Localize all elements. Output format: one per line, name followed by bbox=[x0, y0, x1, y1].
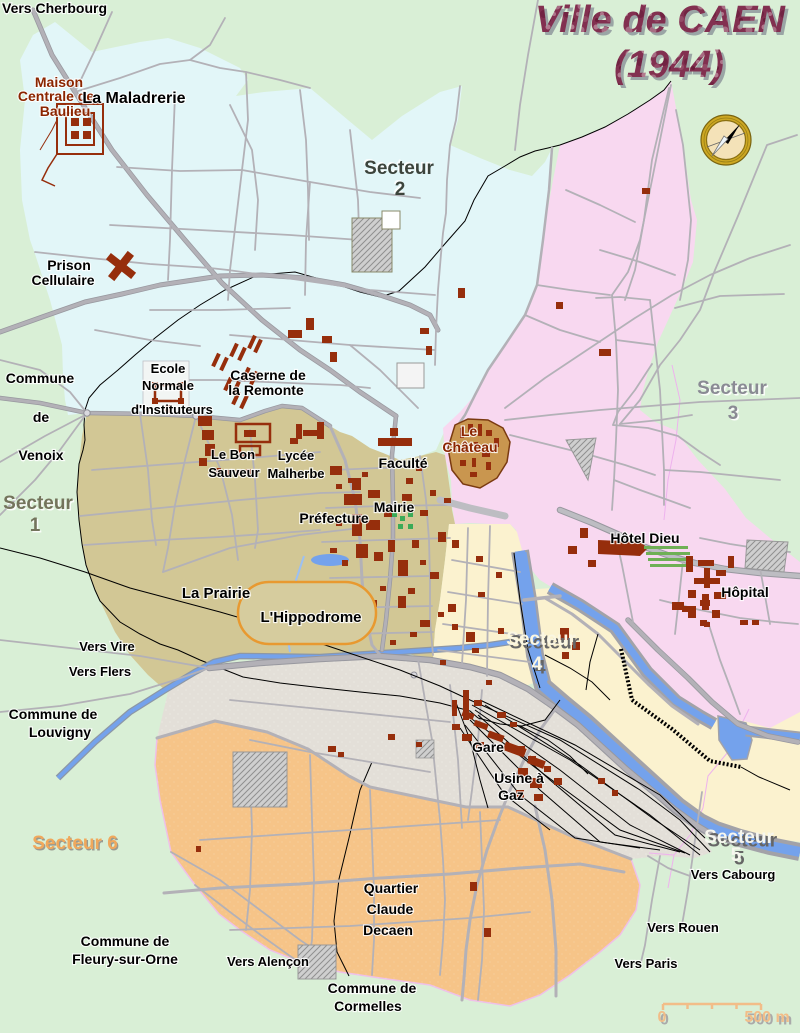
svg-text:Le: Le bbox=[461, 423, 478, 439]
svg-text:Normale: Normale bbox=[142, 378, 194, 393]
svg-text:Secteur 6: Secteur 6 bbox=[32, 833, 118, 854]
svg-text:Secteur: Secteur bbox=[364, 158, 434, 179]
svg-text:Vers Paris: Vers Paris bbox=[615, 956, 678, 971]
svg-text:La Prairie: La Prairie bbox=[182, 585, 250, 602]
svg-text:Venoix: Venoix bbox=[18, 447, 63, 463]
svg-text:Ville de CAEN: Ville de CAEN bbox=[535, 0, 786, 41]
svg-text:3: 3 bbox=[728, 403, 739, 424]
svg-text:Quartier: Quartier bbox=[364, 880, 419, 896]
svg-text:Mairie: Mairie bbox=[374, 499, 415, 515]
svg-text:5: 5 bbox=[731, 845, 742, 866]
svg-text:Gaz: Gaz bbox=[498, 787, 524, 803]
svg-text:4: 4 bbox=[532, 654, 543, 675]
svg-text:Préfecture: Préfecture bbox=[299, 510, 368, 526]
svg-text:Louvigny: Louvigny bbox=[29, 724, 91, 740]
svg-text:Cormelles: Cormelles bbox=[334, 998, 402, 1014]
svg-text:Vers Alençon: Vers Alençon bbox=[227, 954, 309, 969]
svg-text:Secteur: Secteur bbox=[3, 493, 73, 514]
svg-text:Vers Flers: Vers Flers bbox=[69, 664, 131, 679]
svg-text:d'Instituteurs: d'Instituteurs bbox=[131, 402, 213, 417]
svg-text:La Maladrerie: La Maladrerie bbox=[82, 90, 185, 107]
svg-text:Hôpital: Hôpital bbox=[721, 584, 768, 600]
svg-text:Malherbe: Malherbe bbox=[267, 466, 324, 481]
svg-text:Commune de: Commune de bbox=[328, 980, 417, 996]
svg-text:Le Bon: Le Bon bbox=[211, 447, 255, 462]
svg-text:Prison: Prison bbox=[47, 257, 91, 273]
svg-text:Vers Vire: Vers Vire bbox=[79, 639, 134, 654]
svg-text:Commune de: Commune de bbox=[9, 706, 98, 722]
svg-text:L'Hippodrome: L'Hippodrome bbox=[260, 609, 361, 626]
svg-text:la Remonte: la Remonte bbox=[228, 382, 304, 398]
svg-text:Commune: Commune bbox=[6, 370, 75, 386]
svg-text:Vers Rouen: Vers Rouen bbox=[647, 920, 719, 935]
svg-text:de: de bbox=[33, 409, 50, 425]
svg-text:Fleury-sur-Orne: Fleury-sur-Orne bbox=[72, 951, 178, 967]
svg-text:Usine à: Usine à bbox=[494, 770, 544, 786]
svg-text:Faculté: Faculté bbox=[378, 455, 427, 471]
svg-text:Decaen: Decaen bbox=[363, 922, 413, 938]
svg-text:0: 0 bbox=[658, 1009, 667, 1026]
svg-text:500 m: 500 m bbox=[744, 1009, 789, 1026]
svg-text:Secteur: Secteur bbox=[697, 378, 767, 399]
svg-text:Claude: Claude bbox=[367, 901, 414, 917]
svg-text:Lycée: Lycée bbox=[278, 448, 314, 463]
svg-text:Secteur: Secteur bbox=[506, 629, 576, 650]
svg-text:Commune de: Commune de bbox=[81, 933, 170, 949]
svg-text:Caserne de: Caserne de bbox=[230, 367, 306, 383]
svg-text:Cellulaire: Cellulaire bbox=[31, 272, 94, 288]
svg-text:Ecole: Ecole bbox=[151, 361, 186, 376]
svg-text:1: 1 bbox=[30, 515, 41, 536]
svg-text:Vers Cherbourg: Vers Cherbourg bbox=[2, 0, 107, 16]
svg-text:Château: Château bbox=[442, 439, 497, 455]
svg-text:Sauveur: Sauveur bbox=[208, 465, 259, 480]
svg-text:Hôtel Dieu: Hôtel Dieu bbox=[610, 530, 679, 546]
svg-text:(1944): (1944) bbox=[614, 44, 724, 86]
svg-text:2: 2 bbox=[395, 179, 406, 200]
svg-text:Gare: Gare bbox=[472, 739, 504, 755]
